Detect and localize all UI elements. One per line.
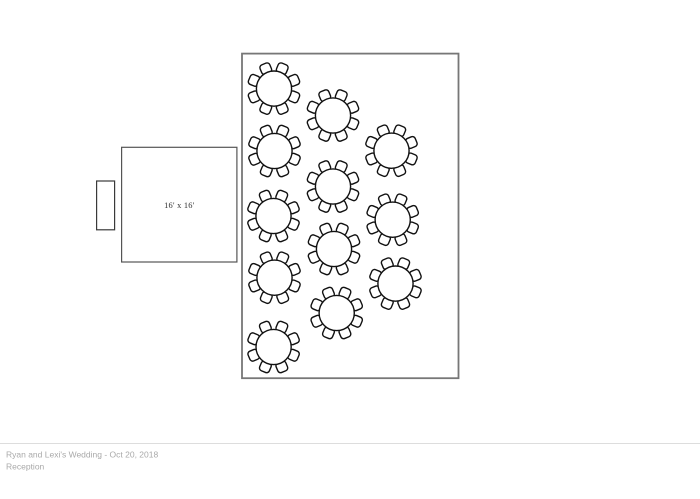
svg-text:16' x 16': 16' x 16' xyxy=(164,201,195,210)
svg-text:Reception: Reception xyxy=(6,462,45,472)
svg-text:Ryan and Lexi's Wedding - Oct: Ryan and Lexi's Wedding - Oct 20, 2018 xyxy=(6,450,158,460)
